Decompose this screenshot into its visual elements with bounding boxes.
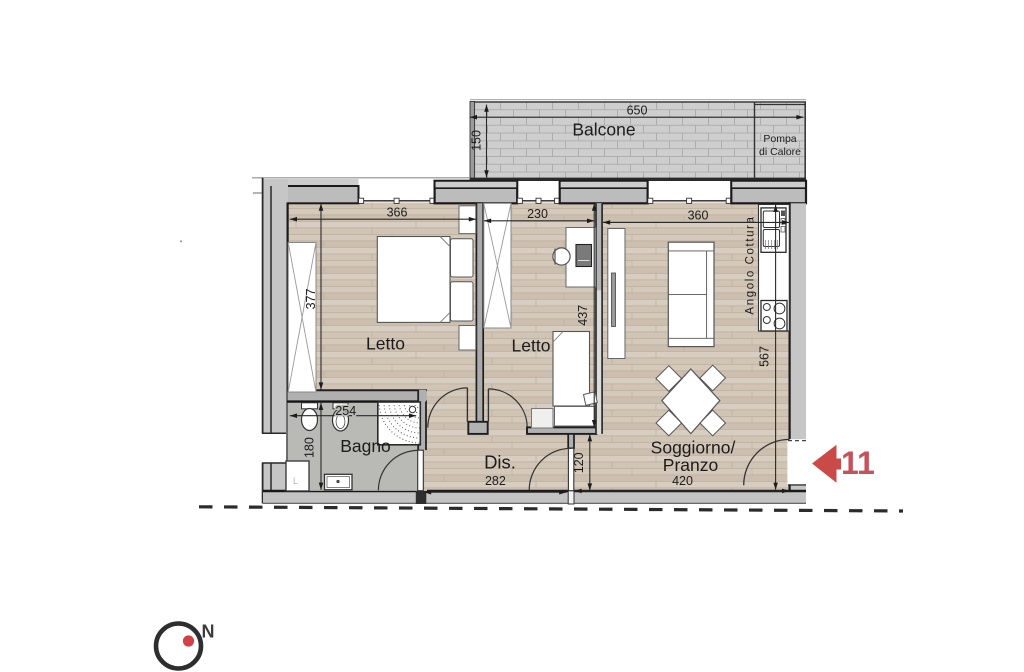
svg-text:150: 150 <box>470 130 484 151</box>
svg-text:567: 567 <box>758 346 772 367</box>
svg-text:N: N <box>202 622 215 642</box>
svg-text:120: 120 <box>572 452 586 473</box>
svg-text:377: 377 <box>304 289 318 310</box>
svg-text:L: L <box>293 476 298 486</box>
svg-text:11: 11 <box>841 445 875 481</box>
svg-text:437: 437 <box>576 305 590 326</box>
svg-text:230: 230 <box>527 207 548 221</box>
svg-text:Letto: Letto <box>366 334 405 354</box>
svg-text:Angolo Cottura: Angolo Cottura <box>745 215 757 314</box>
svg-text:di Calore: di Calore <box>759 146 801 158</box>
svg-text:Letto: Letto <box>512 336 551 356</box>
svg-text:Dis.: Dis. <box>484 452 516 473</box>
svg-text:282: 282 <box>485 474 506 488</box>
svg-text:Bagno: Bagno <box>340 436 391 456</box>
svg-text:180: 180 <box>302 437 316 458</box>
svg-text:420: 420 <box>672 474 693 488</box>
svg-text:Pompa: Pompa <box>763 133 796 145</box>
svg-text:Balcone: Balcone <box>572 120 635 140</box>
svg-text:366: 366 <box>387 206 408 220</box>
svg-text:Pranzo: Pranzo <box>663 455 718 475</box>
svg-text:254: 254 <box>335 404 356 418</box>
svg-text:360: 360 <box>688 209 709 223</box>
svg-text:650: 650 <box>627 104 648 118</box>
